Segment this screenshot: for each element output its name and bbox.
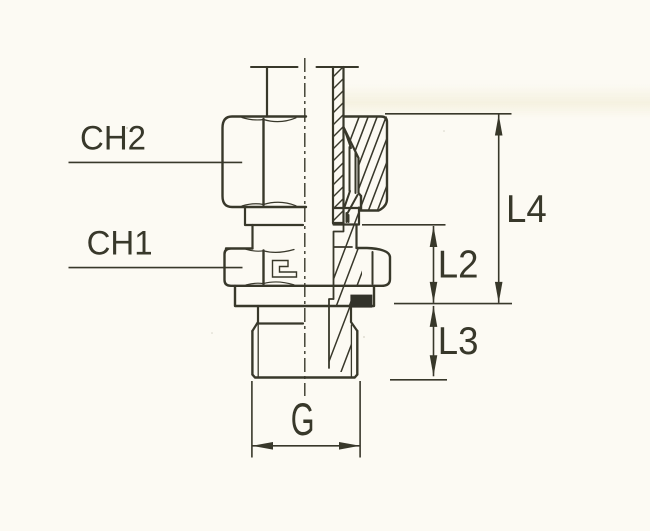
svg-text:G: G	[291, 395, 315, 445]
svg-text:L3: L3	[438, 319, 479, 362]
svg-text:L2: L2	[438, 243, 479, 286]
svg-text:L4: L4	[506, 187, 547, 230]
svg-text:CH1: CH1	[87, 224, 153, 263]
svg-text:CH2: CH2	[80, 119, 146, 158]
